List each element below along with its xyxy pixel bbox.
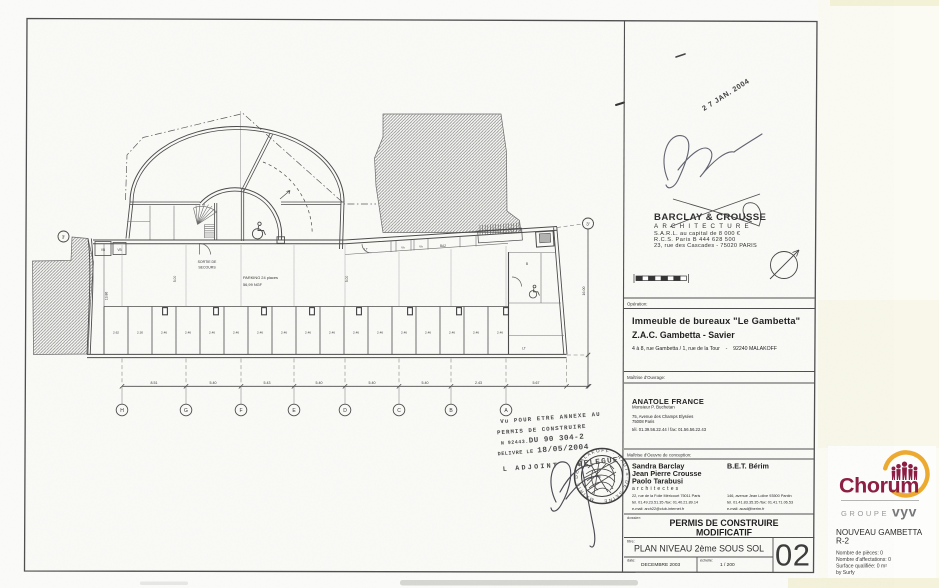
svg-text:Surface qualifiée: 0 m²: Surface qualifiée: 0 m²	[836, 564, 887, 570]
svg-text:GROUPE: GROUPE	[841, 509, 889, 518]
svg-text:Chorum: Chorum	[839, 474, 919, 498]
svg-text:vyv: vyv	[892, 504, 917, 520]
svg-text:by Surfy: by Surfy	[836, 570, 855, 576]
svg-text:Nombre d'affectations: 0: Nombre d'affectations: 0	[836, 557, 891, 563]
svg-text:R-2: R-2	[836, 537, 850, 546]
svg-text:Nombre de pièces: 0: Nombre de pièces: 0	[836, 551, 883, 557]
